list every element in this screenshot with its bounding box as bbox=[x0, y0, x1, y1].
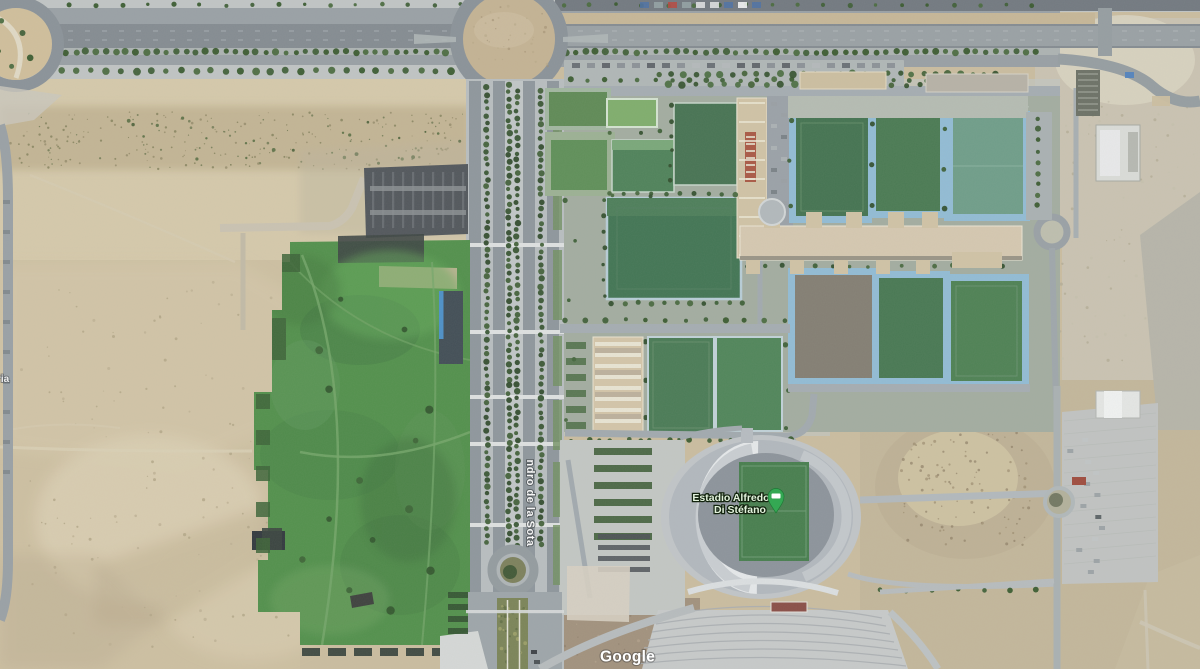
svg-text:Di Stéfano: Di Stéfano bbox=[714, 504, 766, 516]
svg-text:ndro de la Sota: ndro de la Sota bbox=[524, 460, 536, 547]
svg-text:Google: Google bbox=[600, 649, 655, 666]
svg-text:Estadio Alfredo: Estadio Alfredo bbox=[692, 492, 769, 504]
